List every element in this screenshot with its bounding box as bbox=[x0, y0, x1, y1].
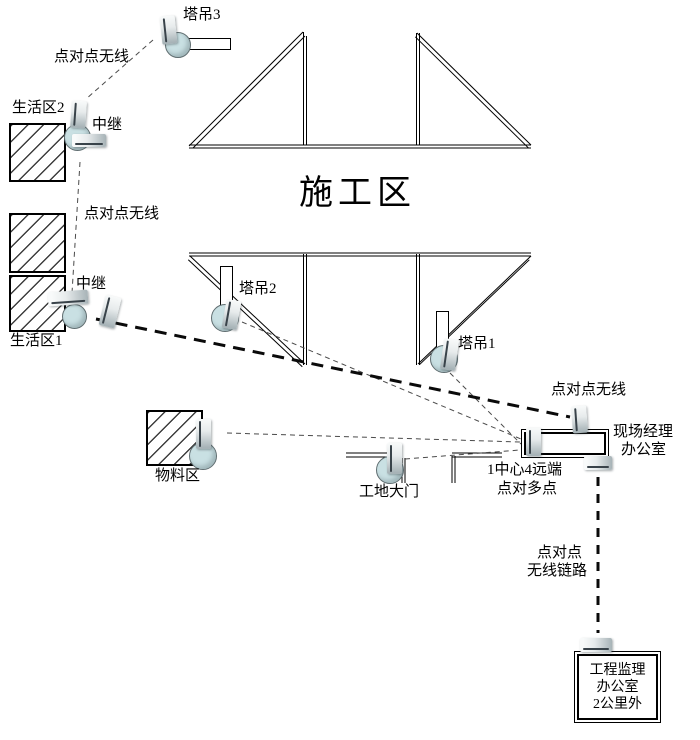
relay-upper-label: 中继 bbox=[92, 117, 122, 134]
upper-truss bbox=[189, 32, 531, 148]
living-area1-label: 生活区1 bbox=[10, 333, 63, 350]
office-top-antenna-icon bbox=[571, 406, 588, 434]
construction-zone-title: 施工区 bbox=[299, 175, 416, 212]
living-area-block-middle bbox=[9, 213, 66, 273]
supervision-office-building: 工程监理 办公室 2公里外 bbox=[574, 651, 661, 723]
site-manager-office-line1: 现场经理 bbox=[613, 424, 673, 441]
crane3-antenna-icon bbox=[160, 15, 178, 44]
site-manager-office-line2: 办公室 bbox=[621, 442, 666, 459]
crane3-label: 塔吊3 bbox=[183, 7, 221, 24]
relay-upper-antenna-icon bbox=[70, 101, 87, 129]
relay-lower-label: 中继 bbox=[76, 276, 106, 293]
relay-upper-antenna2-icon bbox=[72, 134, 106, 147]
materials-antenna-icon bbox=[196, 419, 211, 449]
backhaul-label-line1: 点对点 bbox=[537, 545, 582, 562]
gate-antenna-icon bbox=[387, 443, 402, 474]
p2p-top-label: 点对点无线 bbox=[54, 49, 129, 66]
p2p-mid-label: 点对点无线 bbox=[84, 206, 159, 223]
crane3-arm bbox=[188, 38, 231, 50]
p2p-office-label: 点对点无线 bbox=[551, 382, 626, 399]
wireless-links-thin bbox=[72, 40, 521, 459]
p2mp-label-line2: 点对多点 bbox=[497, 481, 557, 498]
p2mp-label-line1: 1中心4远端 bbox=[487, 462, 562, 479]
supervision-office-line2: 办公室 bbox=[597, 679, 639, 696]
supervision-antenna-icon bbox=[580, 638, 612, 652]
relay-lower-ap-icon bbox=[62, 304, 87, 329]
backhaul-label-line2: 无线链路 bbox=[527, 563, 587, 580]
crane2-label: 塔吊2 bbox=[239, 281, 277, 298]
office-left-antenna-icon bbox=[526, 428, 541, 456]
network-topology-diagram: 工程监理 办公室 2公里外 施工区 塔吊3 点对点无线 生活区2 中继 点对点无… bbox=[0, 0, 700, 740]
supervision-office-line3: 2公里外 bbox=[593, 696, 642, 713]
supervision-office-line1: 工程监理 bbox=[590, 662, 646, 679]
living-area2-label: 生活区2 bbox=[12, 100, 65, 117]
crane1-label: 塔吊1 bbox=[458, 336, 496, 353]
materials-area-label: 物料区 bbox=[155, 468, 200, 485]
diagram-lines bbox=[0, 0, 700, 740]
living-area2-block bbox=[9, 123, 66, 182]
office-bottom-antenna-icon bbox=[584, 456, 612, 470]
gate-label: 工地大门 bbox=[359, 484, 419, 501]
